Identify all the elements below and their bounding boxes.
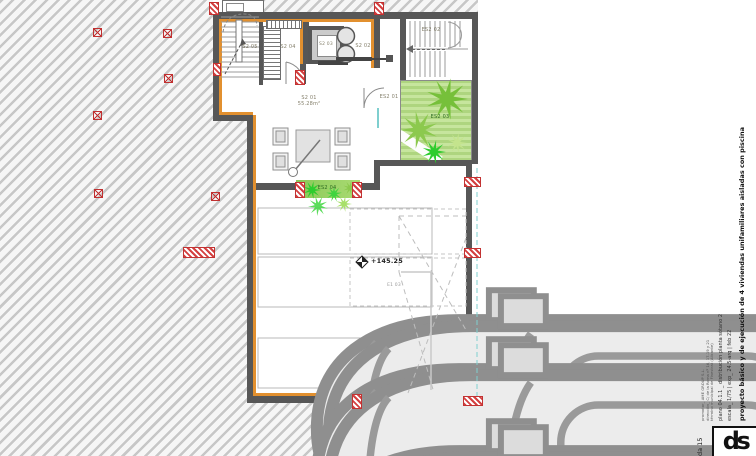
label-ramp-ref: E1 03	[387, 283, 401, 289]
label-stair-room: S2 05	[242, 44, 257, 50]
label-terrace: ES2 01	[380, 94, 399, 100]
label-level-mark: +145.25	[371, 258, 403, 264]
driveway-dash-row	[369, 450, 471, 453]
label-elevator: S2 03	[319, 42, 333, 48]
wall-right-main	[466, 160, 472, 403]
driveway-dash-row	[369, 411, 471, 414]
anchor-marker	[94, 189, 103, 198]
storage-shelf-horizontal	[266, 20, 302, 29]
driveway-dash-row	[369, 424, 471, 427]
label-storage: S2 04	[280, 44, 295, 50]
section-marker	[209, 2, 219, 15]
wall-garden-bottom	[380, 160, 472, 166]
lining-tankroom-wall	[371, 19, 374, 68]
stair-head-detail	[226, 3, 244, 12]
municipality-line: término municipal de Finestrat (Alicante…	[710, 340, 715, 421]
section-marker	[183, 247, 215, 258]
storage-shelf-vertical	[263, 26, 281, 80]
section-marker	[464, 248, 481, 258]
wall-bottom	[247, 396, 362, 403]
earth-hatch-top-strip	[262, 0, 478, 12]
titleblock-project-title: proyecto básico y de ejecución de 4 vivi…	[738, 127, 746, 421]
earth-hatch-region	[0, 0, 756, 456]
lining-step	[219, 112, 253, 115]
titleblock-sheet-name: plano 04.1.1 _ distribución planta sótan…	[718, 314, 724, 421]
studio-side-label: da 15	[696, 438, 704, 456]
anchor-marker	[164, 74, 173, 83]
studio-logo: ds	[712, 426, 756, 456]
driveway-ramp	[365, 403, 475, 456]
label-planter: ES2 04	[318, 185, 337, 191]
main-room-area: 55.28m²	[298, 101, 321, 107]
anchor-marker	[211, 192, 220, 201]
garden-area	[400, 80, 472, 162]
section-marker	[374, 2, 384, 15]
driveway-dash-row	[369, 437, 471, 440]
section-marker	[295, 182, 305, 198]
anchor-marker	[163, 29, 172, 38]
label-garden: ES2 03	[431, 114, 450, 120]
anchor-marker	[93, 28, 102, 37]
lounge-furniture	[273, 128, 350, 177]
stone-retaining-wall-right	[473, 403, 485, 456]
wall-exterior-stair-left	[400, 19, 406, 80]
level-mark-icon	[356, 256, 368, 268]
anchor-marker	[93, 111, 102, 120]
floor-plan-sheet: S2 05 S2 04 S2 03 S2 02 S2 01 55.28m² ES…	[0, 0, 756, 456]
section-marker	[352, 394, 362, 409]
wall-top	[213, 12, 478, 19]
section-marker	[295, 70, 305, 85]
section-marker	[213, 63, 221, 76]
section-marker	[464, 177, 481, 187]
titleblock-promoter-info: promotor_ AME GROUP S.L. dirección_ C/ d…	[701, 340, 715, 421]
garage-opening-dashed-line	[366, 393, 466, 394]
label-main-room: S2 01 55.28m²	[298, 95, 321, 107]
label-exterior-stair: ES2 02	[422, 27, 441, 33]
label-tank-room: S2 02	[355, 43, 370, 49]
titleblock-scale-info: escala_ 1/75 | exp_ 24.5-arq | feb 22	[727, 330, 733, 421]
studio-logo-text: ds	[723, 427, 747, 455]
elevator-door	[318, 61, 348, 65]
section-marker	[463, 396, 483, 406]
garden-path	[400, 123, 443, 162]
parking-bays	[258, 208, 466, 388]
stone-retaining-wall-left	[353, 403, 365, 456]
wall-tankroom-right	[374, 19, 380, 68]
section-marker	[352, 182, 362, 198]
lining-bottom	[253, 393, 362, 396]
wall-right-upper	[472, 12, 478, 164]
lining-left-main	[253, 115, 256, 396]
wall-divider-stub	[374, 160, 380, 190]
